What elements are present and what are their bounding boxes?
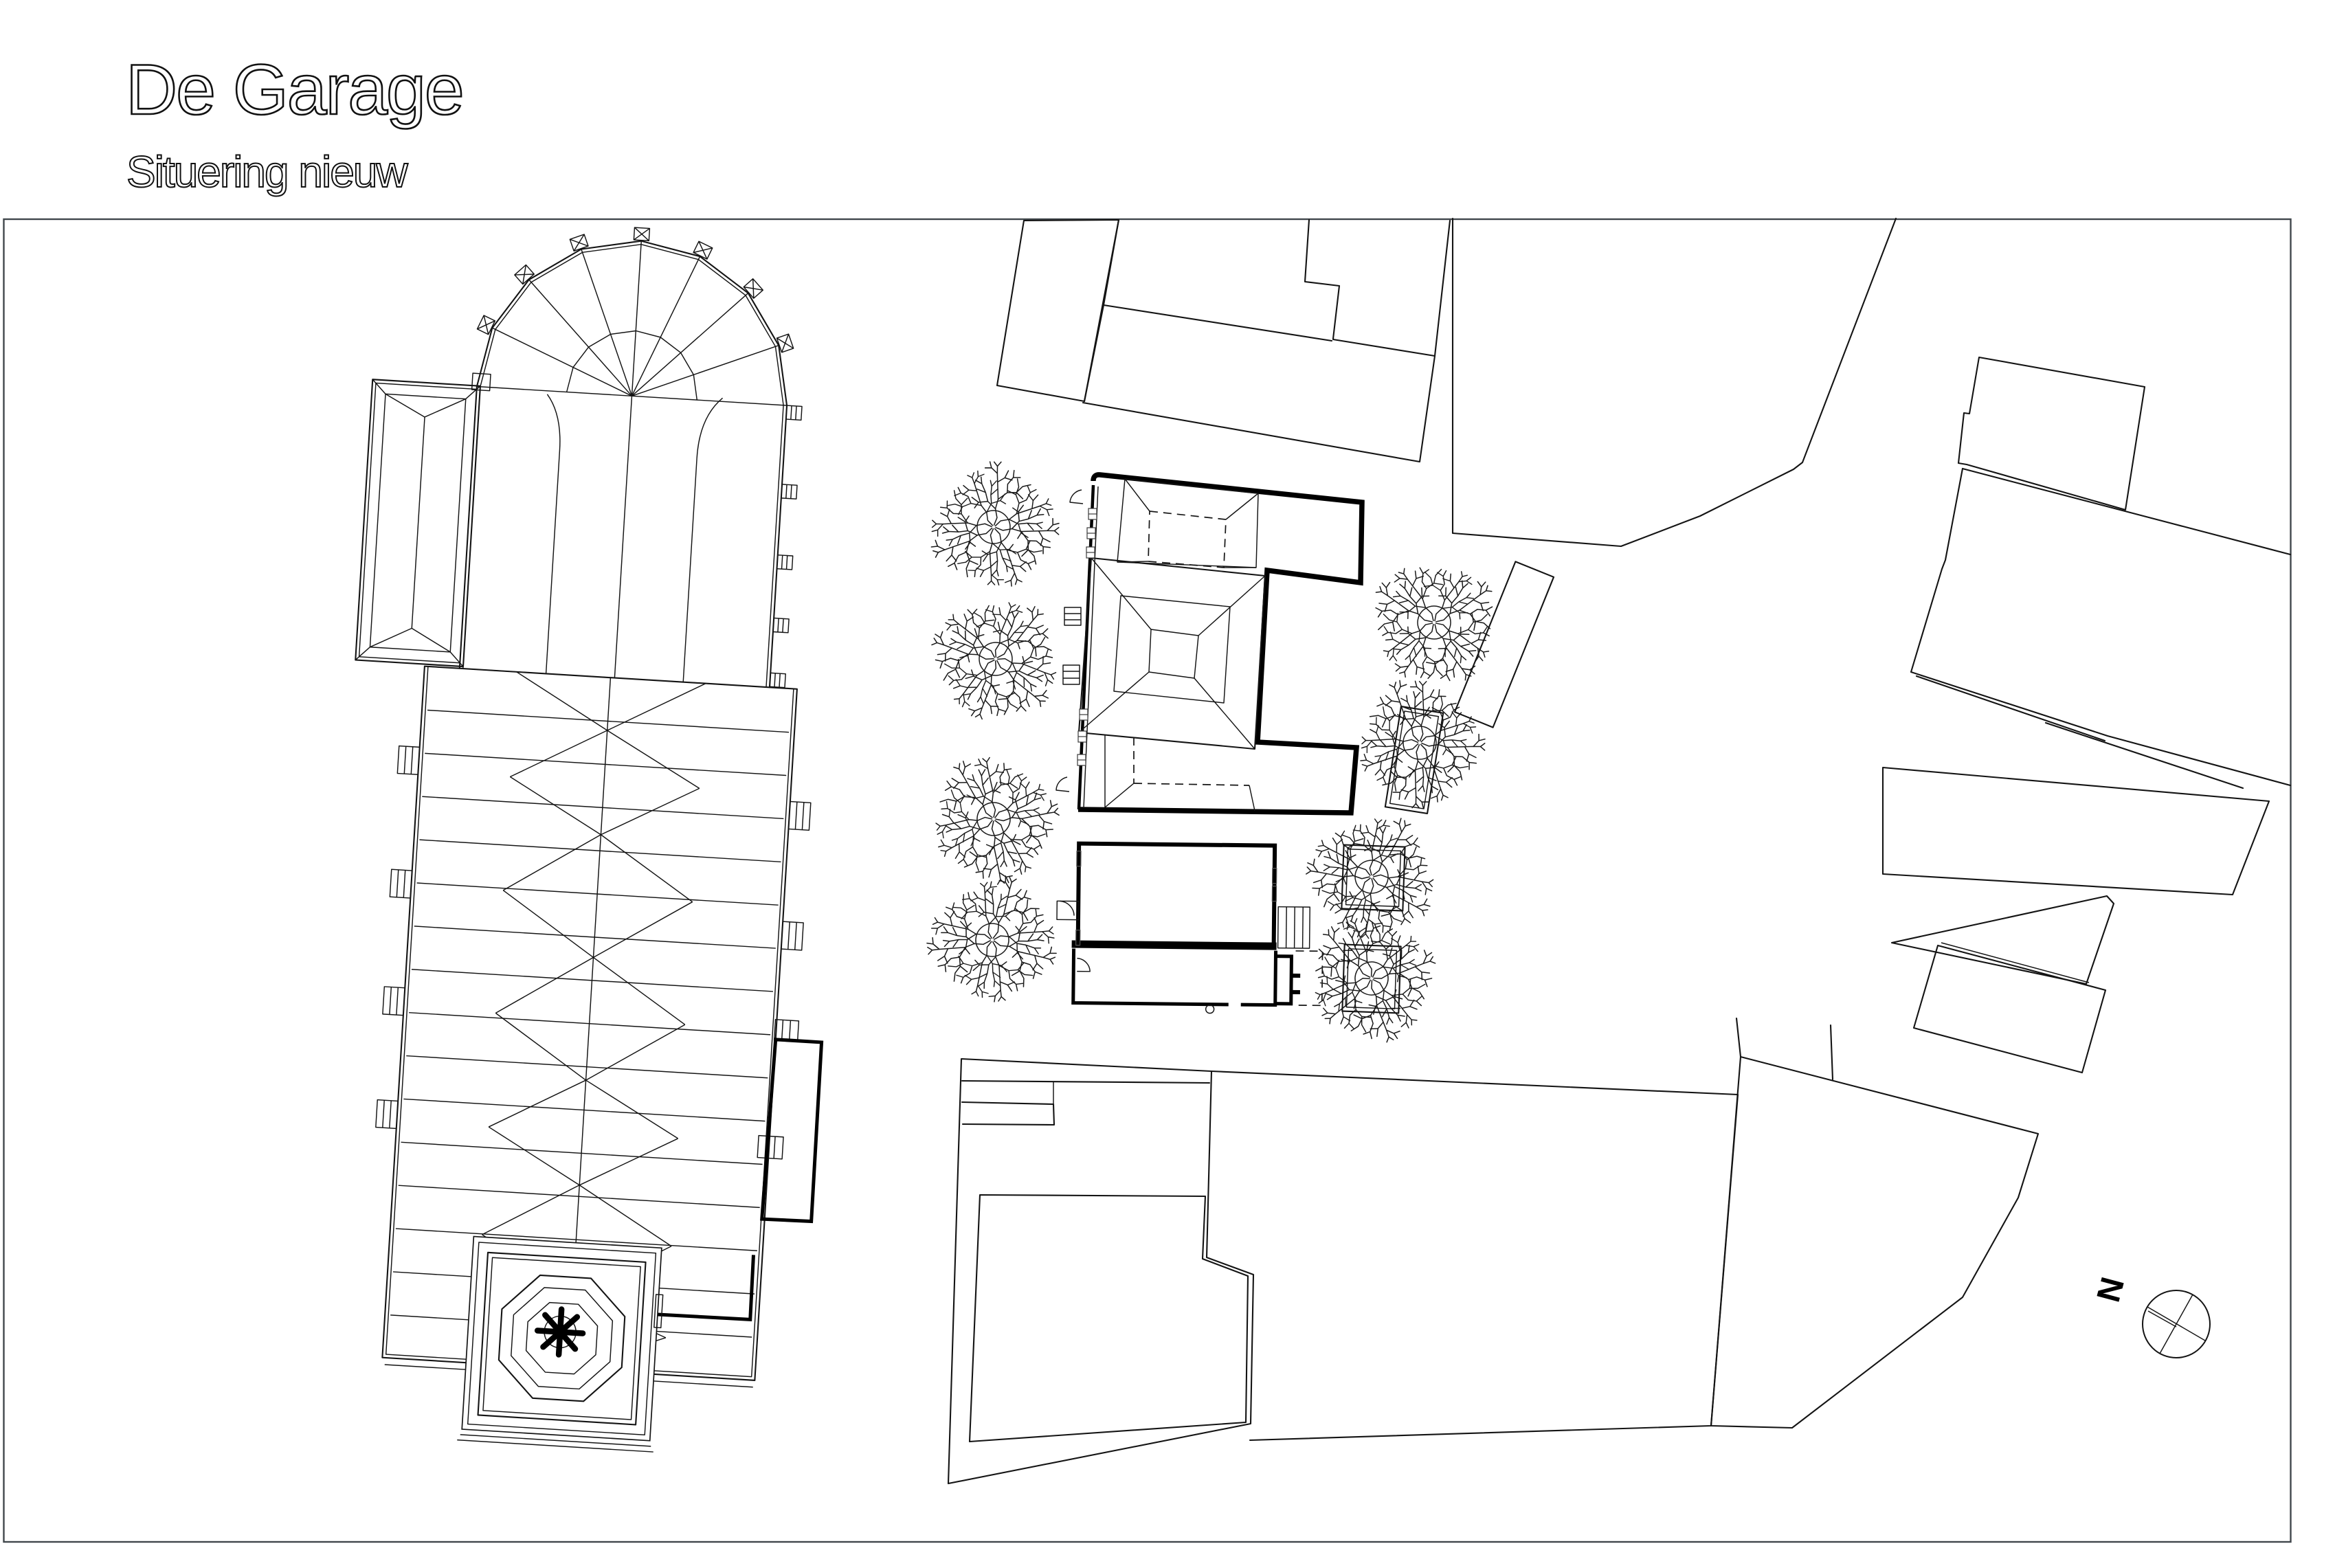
svg-text:Situering nieuw: Situering nieuw bbox=[126, 147, 408, 197]
svg-text:De Garage: De Garage bbox=[126, 50, 463, 130]
